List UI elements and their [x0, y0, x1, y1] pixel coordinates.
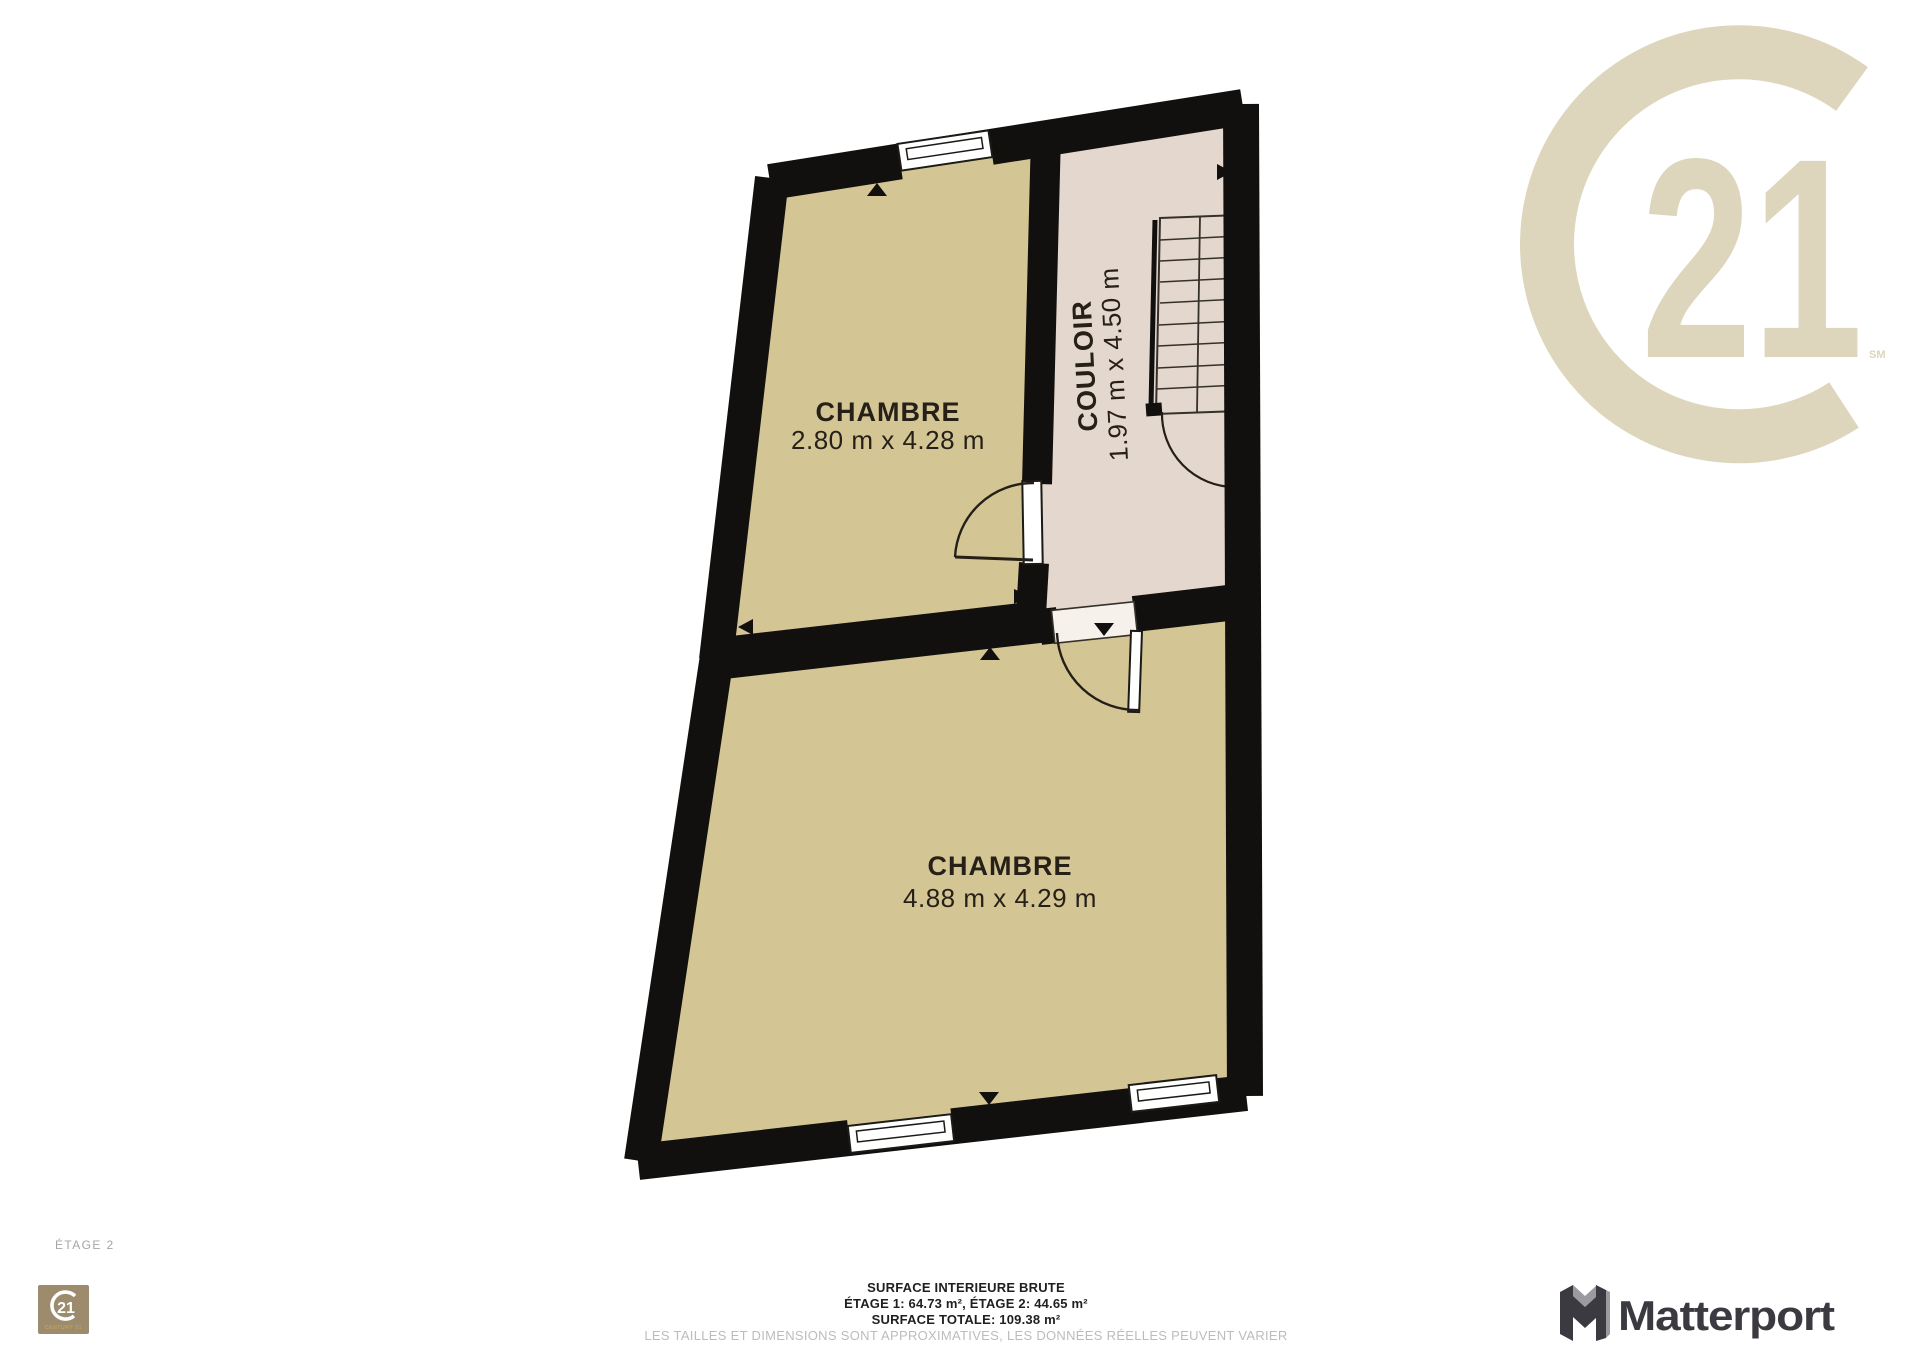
room-couloir [1031, 106, 1243, 621]
c21-service-mark: SM [1869, 349, 1886, 361]
floor-plan-canvas: 21 SM [0, 0, 1920, 1357]
surface-title: SURFACE INTERIEURE BRUTE [867, 1280, 1065, 1295]
surface-total: SURFACE TOTALE: 109.38 m² [872, 1312, 1061, 1327]
surface-summary: SURFACE INTERIEURE BRUTE ÉTAGE 1: 64.73 … [644, 1280, 1287, 1343]
room-label: CHAMBRE [816, 397, 961, 427]
door-leaf [1128, 631, 1142, 712]
surface-floors: ÉTAGE 1: 64.73 m², ÉTAGE 2: 44.65 m² [844, 1296, 1088, 1311]
century21-badge: 21 CENTURY 21 [38, 1285, 89, 1334]
badge-wordmark: CENTURY 21 [45, 1325, 82, 1331]
room-label: CHAMBRE [928, 851, 1073, 881]
matterport-mark-right-bar [1596, 1285, 1606, 1341]
matterport-mark-edge [1606, 1290, 1610, 1338]
badge-number: 21 [57, 1300, 75, 1317]
window-bottom-right [1126, 1054, 1219, 1112]
century21-watermark: 21 SM [1547, 52, 1885, 436]
c21-watermark-number: 21 [1641, 100, 1863, 418]
room-dimensions: 2.80 m x 4.28 m [791, 425, 985, 455]
matterport-logo: Matterport [1560, 1285, 1835, 1341]
room-dimensions: 4.88 m x 4.29 m [903, 883, 1097, 913]
stair-wall-stub [1146, 402, 1163, 416]
wall-couloir-bottom [1134, 601, 1245, 614]
floor-plan: CHAMBRE 2.80 m x 4.28 m COULOIR 1.97 m x… [638, 104, 1246, 1162]
door-opening [1022, 481, 1042, 564]
matterport-wordmark: Matterport [1618, 1292, 1835, 1339]
matterport-mark-icon [1560, 1285, 1610, 1341]
disclaimer: LES TAILLES ET DIMENSIONS SONT APPROXIMA… [644, 1328, 1287, 1343]
matterport-mark-left-bar [1560, 1285, 1573, 1341]
floor-label: ÉTAGE 2 [55, 1237, 115, 1252]
